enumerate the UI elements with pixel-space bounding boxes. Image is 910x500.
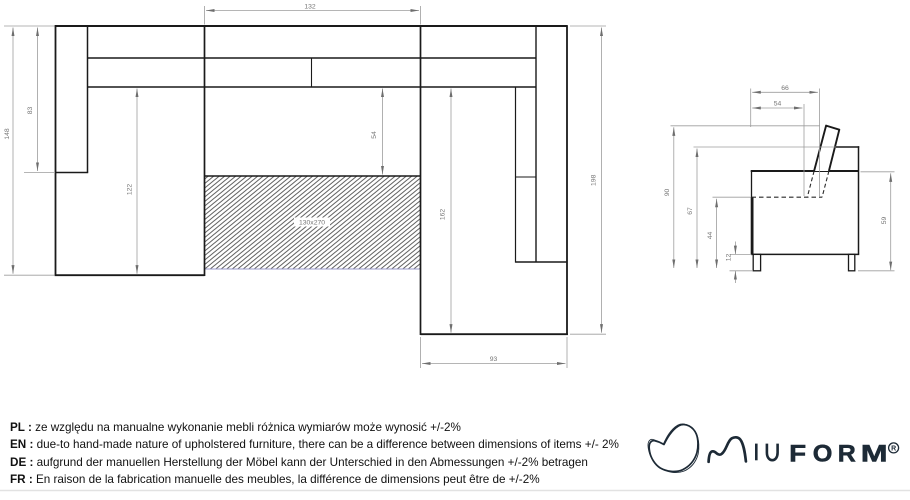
svg-text:O: O bbox=[813, 441, 833, 467]
svg-text:66: 66 bbox=[781, 85, 789, 92]
svg-text:83: 83 bbox=[27, 107, 34, 115]
svg-text:198: 198 bbox=[591, 174, 598, 186]
svg-text:44: 44 bbox=[707, 232, 714, 240]
svg-text:162: 162 bbox=[440, 209, 447, 221]
svg-text:R: R bbox=[891, 445, 896, 452]
svg-text:F: F bbox=[789, 441, 806, 467]
svg-text:93: 93 bbox=[490, 356, 498, 363]
svg-text:67: 67 bbox=[687, 207, 694, 215]
svg-text:122: 122 bbox=[127, 184, 134, 196]
svg-text:90: 90 bbox=[664, 189, 671, 197]
svg-text:54: 54 bbox=[774, 101, 782, 108]
svg-text:148: 148 bbox=[4, 128, 11, 140]
svg-text:R: R bbox=[838, 441, 856, 467]
svg-text:54: 54 bbox=[371, 131, 378, 139]
svg-text:130x270: 130x270 bbox=[299, 219, 325, 226]
svg-text:59: 59 bbox=[881, 217, 888, 225]
svg-text:M: M bbox=[861, 440, 888, 467]
svg-text:132: 132 bbox=[304, 4, 316, 11]
svg-text:12: 12 bbox=[725, 254, 732, 262]
